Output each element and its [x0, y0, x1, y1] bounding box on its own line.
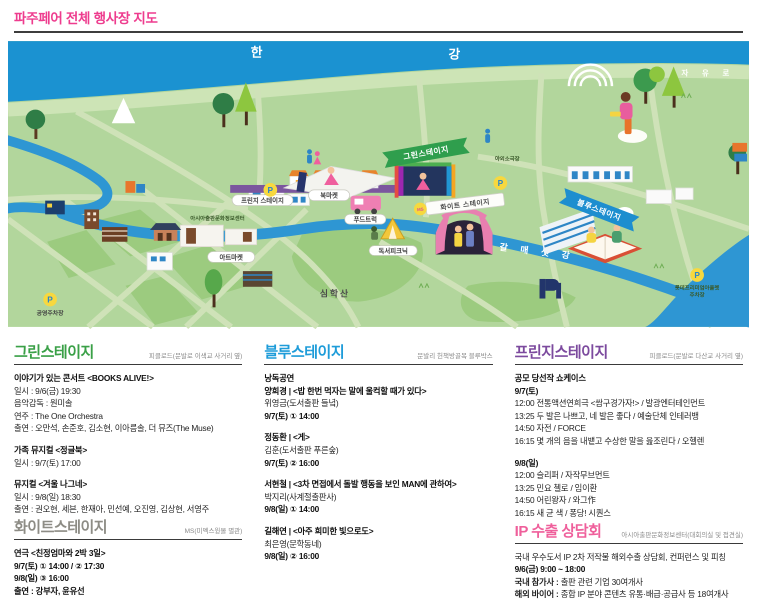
event-detail: 출연 : 권오현, 세븐, 한재아, 민선예, 오진영, 김상현, 서영주 [14, 503, 242, 516]
svg-text:P: P [694, 270, 700, 280]
public-parking-label: 공영주차장 [37, 309, 65, 317]
divider [14, 539, 242, 540]
event-detail: 14:50 자전 / FORCE [515, 422, 743, 435]
han-river-label-1: 한 [251, 45, 263, 60]
page-header: 파주페어 전체 행사장 지도 [0, 0, 757, 33]
event-detail: 12:00 슬리퍼 / 자작무브먼트 [515, 469, 743, 482]
svg-text:주차장: 주차장 [690, 291, 705, 299]
divider [14, 31, 743, 33]
svg-text:P: P [47, 294, 53, 304]
event-detail: 12:00 전통액션연희극 <쌈구경가자!> / 발광엔터테인먼트 [515, 397, 743, 410]
event-detail: 일시 : 9/7(토) 17:00 [14, 457, 242, 470]
event-time: 9/7(토) ① 14:00 [264, 410, 492, 423]
jayuro-label: 자 유 로 [681, 68, 735, 77]
ip-export-location: 아시아출판문화정보센터(대회의실 및 접견실) [621, 529, 743, 541]
event-category: 낭독공연 [264, 372, 492, 385]
event-detail: 일시 : 9/6(금) 19:30 [14, 385, 242, 398]
event-detail: 9/8(일) ③ 16:00 [14, 572, 242, 585]
event-title: 길해연 | <아주 희미한 빛으로도> [264, 525, 492, 538]
event-detail: 출연 : 오만석, 손준호, 김소현, 이아름솔, 더 뮤즈(The Muse) [14, 422, 242, 435]
food-truck-label: 푸드트럭 [345, 214, 386, 224]
white-sheds [568, 166, 633, 182]
parking-icon: P [263, 183, 277, 197]
svg-text:아트마켓: 아트마켓 [219, 252, 243, 261]
divider [14, 364, 242, 365]
blue-stage-location: 문발리 헌책방골목 블루박스 [417, 350, 492, 362]
event-detail: 일시 : 9/8(일) 18:30 [14, 491, 242, 504]
event-title: 서현철 | <3차 면접에서 돌발 행동을 보인 MAN에 관하여> [264, 478, 492, 491]
event-date: 9/8(일) [515, 457, 743, 470]
divider [515, 543, 743, 544]
event-detail: 16:15 몇 개의 음을 내뱉고 수상한 말을 읊조린다 / 오헬렌 [515, 435, 743, 448]
event-detail: 음악감독 : 원미솔 [14, 397, 242, 410]
event-time: 9/6(금) 9:00 ~ 18:00 [515, 563, 743, 576]
event-detail: 박지리(사계절출판사) [264, 491, 492, 504]
svg-text:P: P [268, 185, 274, 195]
event-detail: 출연 : 강부자, 윤유선 [14, 585, 242, 598]
white-stage-title: 화이트스테이지 [14, 516, 107, 537]
festival-map: 갈매샛강 한 강 자 유 로 [8, 39, 749, 329]
blue-stage-section: 블루스테이지 문발리 헌책방골목 블루박스 낭독공연 양희경 | <밥 한번 먹… [264, 341, 492, 563]
green-stage-title: 그린스테이지 [14, 341, 94, 362]
parking-icon: P [494, 176, 508, 190]
event-title: 연극 <친정엄마와 2박 3일> [14, 547, 242, 560]
event-detail: 13:25 민요 첼로 / 임이환 [515, 482, 743, 495]
event-detail: 김훈(도서출판 푸른숲) [264, 444, 492, 457]
detail-value: 출판 관련 기업 30여개사 [561, 577, 643, 587]
svg-text:프린지 스테이지: 프린지 스테이지 [241, 196, 284, 205]
green-stage-section: 그린스테이지 피클로드(문발로 이색교 사거리 옆) 이야기가 있는 콘서트 <… [14, 341, 242, 516]
event-detail: 최은영(문학동네) [264, 538, 492, 551]
simhaksan-label: 심학산 [320, 288, 350, 299]
event-detail: 국내 우수도서 IP 2차 저작물 해외수출 상담회, 컨퍼런스 및 피칭 [515, 551, 743, 564]
schedule-columns: 그린스테이지 피클로드(문발로 이색교 사거리 옆) 이야기가 있는 콘서트 <… [0, 329, 757, 601]
event-title: 이야기가 있는 콘서트 <BOOKS ALIVE!> [14, 372, 242, 385]
event-detail: 국내 참가사 : 출판 관련 기업 30여개사 [515, 576, 743, 589]
svg-text:북마켓: 북마켓 [320, 191, 338, 200]
green-stage-location: 피클로드(문발로 이색교 사거리 옆) [149, 350, 242, 362]
hanok-building [150, 223, 181, 241]
event-title: 양희경 | <밥 한번 먹자는 말에 울컥할 때가 있다> [264, 385, 492, 398]
event-detail: 해외 바이어 : 종합 IP 분야 콘텐츠 유통·배급·공급사 등 18여개사 [515, 588, 743, 601]
event-detail: 16:15 새 균 색 / 퐁당! 시퀀스 [515, 507, 743, 520]
event-category: 공모 당선작 쇼케이스 [515, 372, 743, 385]
fringe-stage-label: 프린지 스테이지 [232, 195, 293, 206]
outlet-parking-label: 롯데프리미엄아울렛 [675, 284, 720, 292]
event-time: 9/8(일) ② 16:00 [264, 550, 492, 563]
detail-label: 해외 바이어 : [515, 589, 561, 599]
ms-badge: MS [417, 207, 424, 213]
event-detail: 9/7(토) ① 14:00 / ② 17:30 [14, 560, 242, 573]
event-time: 9/8(일) ① 14:00 [264, 503, 492, 516]
event-detail: 14:50 어린왕자 / 와그作 [515, 494, 743, 507]
book-picnic-label: 독서피크닉 [369, 246, 417, 256]
fringe-stage-title: 프린지스테이지 [515, 341, 608, 362]
divider [264, 364, 492, 365]
han-river-label-2: 강 [448, 47, 460, 62]
art-market-label: 아트마켓 [208, 252, 255, 263]
detail-value: 종합 IP 분야 콘텐츠 유통·배급·공급사 등 18여개사 [561, 589, 729, 599]
svg-text:P: P [498, 178, 504, 188]
book-market-label: 북마켓 [309, 190, 350, 201]
ip-export-title: IP 수출 상담회 [515, 520, 602, 541]
event-time: 9/7(토) ② 16:00 [264, 457, 492, 470]
event-date: 9/7(토) [515, 385, 743, 398]
fringe-stage-location: 피클로드(문발로 다산교 사거리 옆) [650, 350, 743, 362]
event-title: 가족 뮤지컬 <정글북> [14, 444, 242, 457]
svg-text:독서피크닉: 독서피크닉 [379, 246, 408, 255]
fringe-stage-section: 프린지스테이지 피클로드(문발로 다산교 사거리 옆) 공모 당선작 쇼케이스 … [515, 341, 743, 520]
blue-stage-title: 블루스테이지 [264, 341, 344, 362]
green-stage [395, 162, 456, 197]
asia-center-label: 아시아출판문화정보센터 [190, 214, 244, 222]
white-stage-location: MS(미멕스윙몰 별관) [185, 525, 243, 537]
svg-text:푸드트럭: 푸드트럭 [354, 215, 378, 224]
ip-export-section: IP 수출 상담회 아시아출판문화정보센터(대회의실 및 접견실) 국내 우수도… [515, 520, 743, 601]
divider [515, 364, 743, 365]
page-title: 파주페어 전체 행사장 지도 [14, 7, 743, 27]
event-detail: 13:25 두 발은 나쁘고, 네 발은 좋다 / 예술단체 인테러뱅 [515, 410, 743, 423]
event-detail: 연주 : The One Orchestra [14, 410, 242, 423]
outdoor-theater-label: 야외소극장 [495, 155, 520, 163]
detail-label: 국내 참가사 : [515, 577, 561, 587]
event-detail: 위영금(도서출판 들녘) [264, 397, 492, 410]
event-title: 뮤지컬 <겨울 나그네> [14, 478, 242, 491]
event-title: 정동환 | <게> [264, 431, 492, 444]
white-stage-section: 화이트스테이지 MS(미멕스윙몰 별관) 연극 <친정엄마와 2박 3일> 9/… [14, 516, 242, 597]
